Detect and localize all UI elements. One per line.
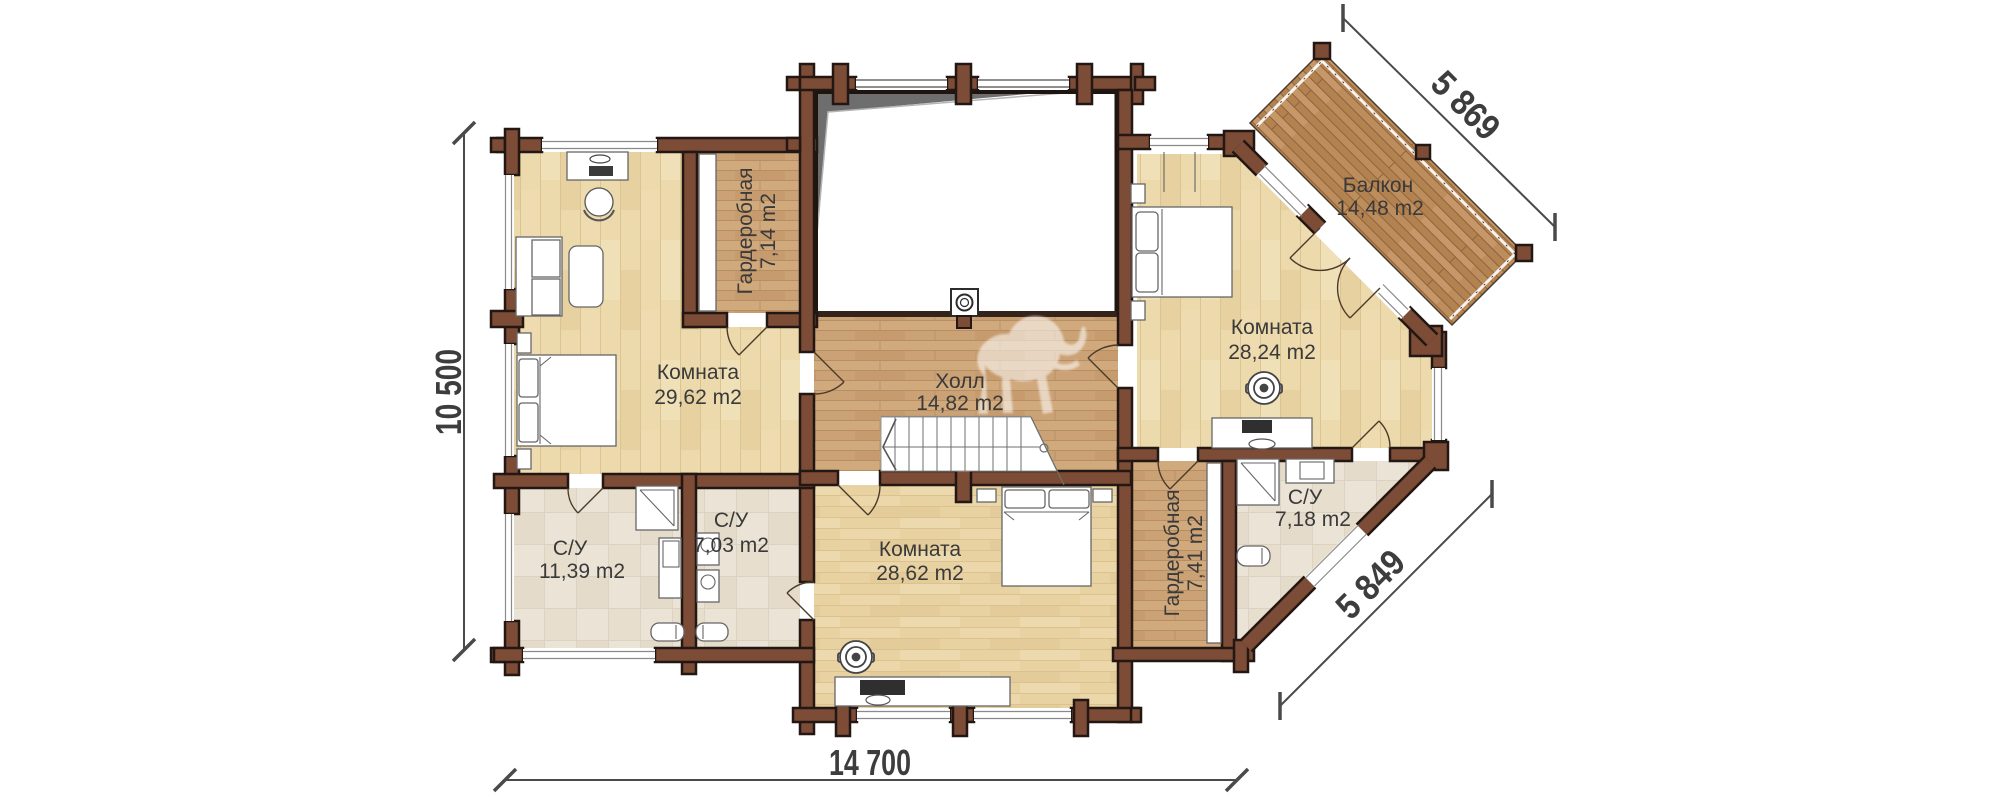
svg-text:28,24 m2: 28,24 m2 — [1228, 341, 1316, 364]
svg-text:7,03 m2: 7,03 m2 — [693, 534, 769, 557]
svg-text:Гардеробная: Гардеробная — [1161, 489, 1184, 616]
svg-text:Холл: Холл — [935, 370, 985, 393]
svg-text:Гардеробная: Гардеробная — [734, 167, 757, 294]
svg-text:7,18 m2: 7,18 m2 — [1275, 508, 1351, 531]
svg-text:7,14 m2: 7,14 m2 — [757, 193, 780, 269]
svg-text:С/У: С/У — [1288, 486, 1323, 509]
svg-text:Балкон: Балкон — [1343, 174, 1413, 197]
svg-text:14,48 m2: 14,48 m2 — [1336, 197, 1424, 220]
svg-text:Комната: Комната — [1231, 316, 1314, 339]
svg-text:7,41 m2: 7,41 m2 — [1184, 515, 1207, 591]
svg-text:С/У: С/У — [714, 509, 749, 532]
svg-text:С/У: С/У — [553, 537, 588, 560]
svg-text:28,62 m2: 28,62 m2 — [876, 562, 964, 585]
svg-text:11,39 m2: 11,39 m2 — [539, 560, 625, 583]
svg-text:14,82 m2: 14,82 m2 — [916, 392, 1004, 415]
svg-text:10 500: 10 500 — [428, 349, 469, 435]
svg-text:29,62 m2: 29,62 m2 — [654, 386, 742, 409]
svg-text:Комната: Комната — [879, 538, 962, 561]
svg-text:Комната: Комната — [657, 361, 740, 384]
svg-text:14 700: 14 700 — [829, 742, 911, 783]
